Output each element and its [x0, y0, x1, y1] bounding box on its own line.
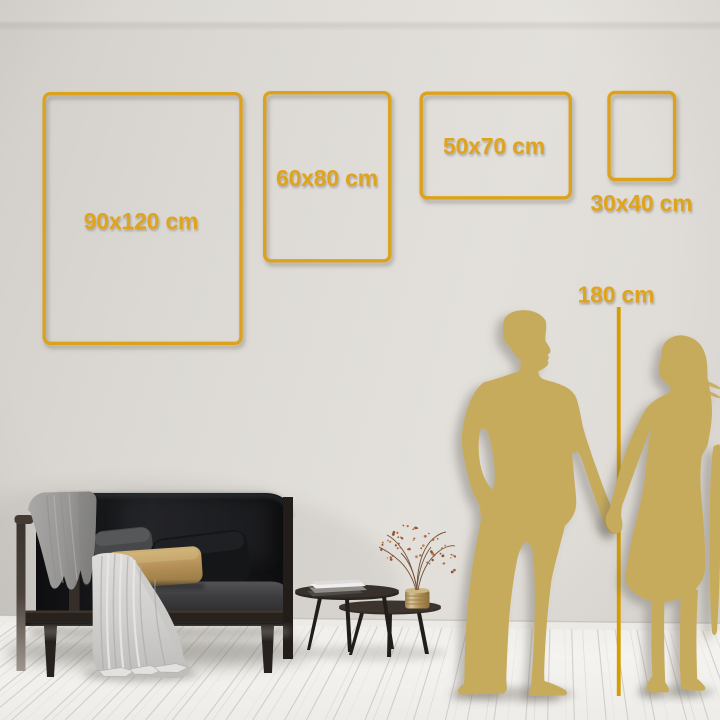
svg-text:30x40 cm: 30x40 cm [591, 190, 693, 216]
svg-text:60x80 cm: 60x80 cm [276, 165, 378, 191]
svg-text:90x120 cm: 90x120 cm [84, 208, 199, 234]
svg-text:50x70 cm: 50x70 cm [443, 133, 545, 159]
svg-text:180 cm: 180 cm [578, 282, 655, 308]
